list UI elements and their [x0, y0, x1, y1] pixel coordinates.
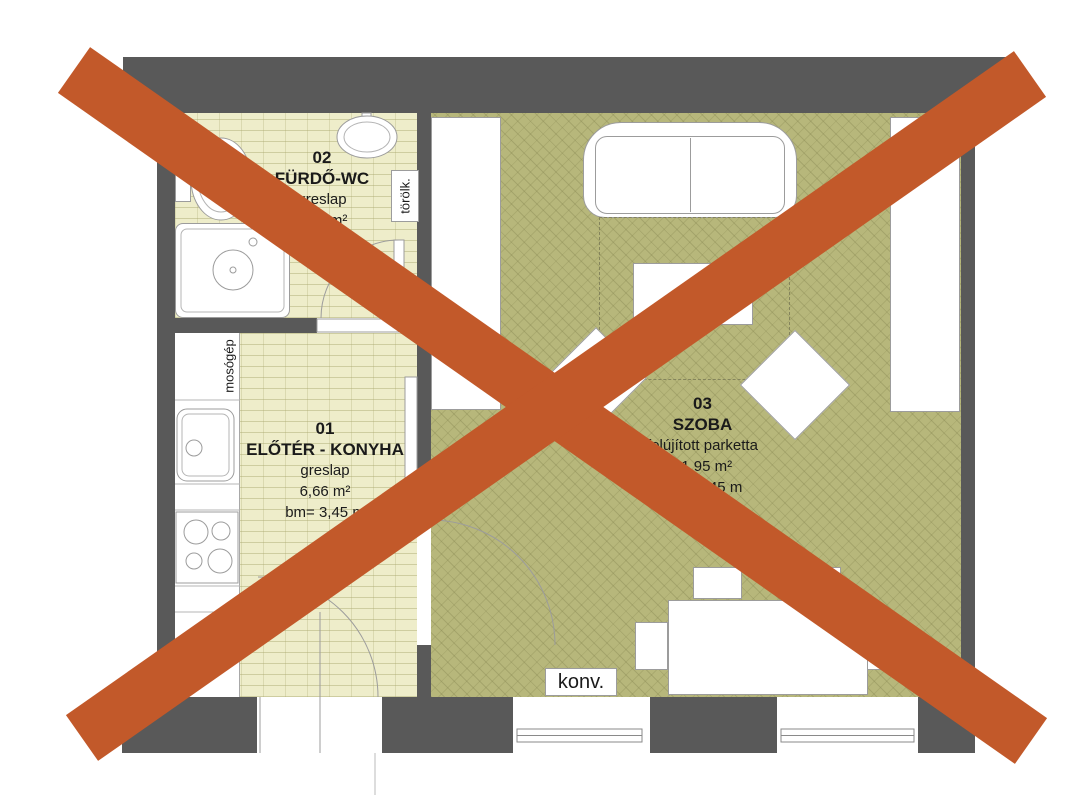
top-wall — [123, 57, 1008, 113]
room-area: 3,54 m² — [297, 210, 348, 231]
room-finish: greslap — [297, 189, 346, 210]
convector-label-box: konv. — [545, 668, 617, 696]
interior-wall-vertical-lower — [417, 645, 431, 697]
towel-rail-label: törölk. — [398, 178, 413, 213]
bottom-wall-segment — [650, 697, 777, 753]
interior-wall-horizontal-left — [157, 318, 317, 333]
room-name: SZOBA — [673, 414, 733, 435]
left-wall — [157, 113, 175, 753]
interior-wall-horizontal-right — [403, 318, 431, 333]
room-finish: greslap — [300, 460, 349, 481]
room-name: FÜRDŐ-WC — [275, 168, 369, 189]
dining-chair-right — [867, 617, 900, 670]
window-left — [517, 729, 642, 742]
room-name: ELŐTÉR - KONYHA — [246, 439, 404, 460]
dining-chair-top-right — [791, 567, 841, 599]
room-finish: felújított parketta — [647, 435, 758, 456]
wardrobe-left — [431, 117, 501, 410]
room-number: 02 — [313, 147, 332, 168]
washing-machine-label: mosógép — [222, 339, 237, 392]
room-height: bm= 3,45 m — [663, 477, 743, 498]
toilet-tank — [175, 157, 191, 202]
convector-label: konv. — [558, 671, 604, 694]
sofa-cushion-divider — [690, 138, 691, 212]
room-number: 03 — [693, 393, 712, 414]
room-area: 21,95 m² — [673, 456, 732, 477]
right-wall — [961, 113, 975, 753]
window-right — [781, 729, 914, 742]
bottom-wall-segment — [382, 697, 513, 753]
room-label-bathroom: 02 FÜRDŐ-WC greslap 3,54 m² bm= 3,45 m — [237, 147, 407, 252]
dining-table — [668, 600, 868, 695]
room-height: bm= 3,45 m — [285, 502, 365, 523]
room-number: 01 — [316, 418, 335, 439]
dining-chair-top-left — [693, 567, 742, 599]
bottom-wall-segment — [122, 697, 257, 753]
room-area: 6,66 m² — [300, 481, 351, 502]
dining-chair-left — [635, 622, 668, 670]
room-label-kitchen: 01 ELŐTÉR - KONYHA greslap 6,66 m² bm= 3… — [225, 418, 425, 523]
room-label-living-room: 03 SZOBA felújított parketta 21,95 m² bm… — [605, 393, 800, 498]
bottom-wall-segment — [918, 697, 975, 753]
floor-plan-canvas: 02 FÜRDŐ-WC greslap 3,54 m² bm= 3,45 m 0… — [0, 0, 1077, 807]
wardrobe-right — [890, 117, 960, 412]
bathroom-door-threshold — [317, 319, 403, 332]
room-height: bm= 3,45 m — [282, 231, 362, 252]
coffee-table — [633, 263, 753, 325]
